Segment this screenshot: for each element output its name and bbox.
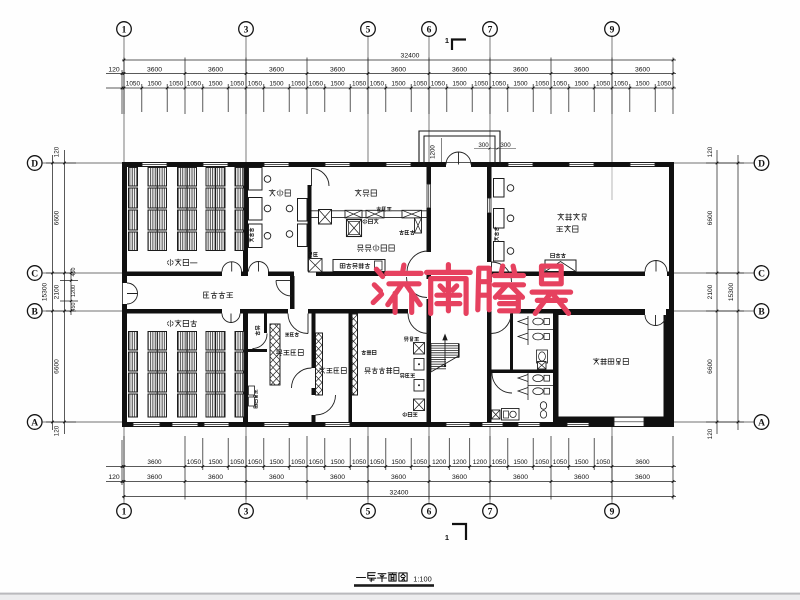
- svg-text:1050: 1050: [126, 81, 141, 88]
- svg-text:1050: 1050: [230, 81, 245, 88]
- svg-text:2100: 2100: [707, 284, 714, 299]
- svg-text:3: 3: [244, 508, 249, 518]
- svg-text:A: A: [31, 418, 38, 428]
- svg-text:D: D: [31, 159, 38, 169]
- svg-text:1200: 1200: [432, 459, 447, 466]
- svg-text:1050: 1050: [169, 81, 184, 88]
- svg-text:1050: 1050: [187, 81, 202, 88]
- svg-text:3600: 3600: [574, 67, 589, 74]
- svg-text:1: 1: [122, 508, 127, 518]
- svg-text:1500: 1500: [208, 459, 223, 466]
- svg-text:1050: 1050: [614, 81, 629, 88]
- svg-text:1050: 1050: [535, 81, 550, 88]
- svg-text:9: 9: [610, 26, 615, 36]
- svg-text:3600: 3600: [208, 474, 223, 481]
- svg-text:7: 7: [488, 26, 493, 36]
- svg-text:3600: 3600: [452, 474, 467, 481]
- svg-text:1050: 1050: [553, 459, 568, 466]
- svg-text:3600: 3600: [635, 67, 650, 74]
- svg-text:450: 450: [71, 268, 77, 277]
- svg-text:C: C: [31, 269, 38, 279]
- svg-text:B: B: [758, 307, 765, 317]
- svg-text:1050: 1050: [596, 81, 611, 88]
- svg-text:1050: 1050: [248, 459, 263, 466]
- svg-text:3600: 3600: [635, 459, 650, 466]
- svg-text:3600: 3600: [147, 67, 162, 74]
- svg-text:3600: 3600: [208, 67, 223, 74]
- svg-text:3600: 3600: [391, 474, 406, 481]
- svg-text:3600: 3600: [330, 474, 345, 481]
- svg-text:1050: 1050: [187, 459, 202, 466]
- svg-text:7: 7: [488, 508, 493, 518]
- svg-text:1050: 1050: [431, 81, 446, 88]
- svg-text:15300: 15300: [42, 283, 49, 302]
- svg-text:1050: 1050: [309, 459, 324, 466]
- svg-text:B: B: [32, 307, 39, 317]
- svg-text:1050: 1050: [492, 459, 507, 466]
- svg-text:D: D: [758, 159, 765, 169]
- svg-text:3600: 3600: [513, 474, 528, 481]
- svg-text:6: 6: [427, 508, 432, 518]
- svg-text:1500: 1500: [391, 459, 406, 466]
- svg-text:1500: 1500: [574, 459, 589, 466]
- svg-text:9: 9: [610, 508, 615, 518]
- svg-text:A: A: [758, 418, 765, 428]
- svg-text:3600: 3600: [452, 67, 467, 74]
- svg-text:1: 1: [445, 533, 449, 542]
- svg-text:3600: 3600: [574, 474, 589, 481]
- svg-text:6600: 6600: [707, 210, 714, 225]
- svg-text:1050: 1050: [291, 81, 306, 88]
- svg-text:1: 1: [122, 26, 127, 36]
- svg-text:1050: 1050: [413, 459, 428, 466]
- svg-text:300: 300: [478, 142, 489, 149]
- svg-text:1500: 1500: [147, 81, 162, 88]
- svg-text:1500: 1500: [513, 459, 528, 466]
- svg-text:120: 120: [707, 428, 714, 439]
- svg-text:C: C: [758, 269, 765, 279]
- svg-text:450: 450: [71, 303, 77, 312]
- svg-text:1050: 1050: [535, 459, 550, 466]
- svg-text:1: 1: [445, 36, 449, 45]
- svg-text:32400: 32400: [401, 53, 420, 60]
- svg-text:3600: 3600: [635, 474, 650, 481]
- svg-text:1050: 1050: [553, 81, 568, 88]
- svg-text:15300: 15300: [728, 283, 735, 302]
- svg-text:1500: 1500: [574, 81, 589, 88]
- svg-text:1500: 1500: [269, 459, 284, 466]
- svg-text:1050: 1050: [370, 459, 385, 466]
- svg-text:2100: 2100: [54, 284, 61, 299]
- svg-text:1050: 1050: [352, 459, 367, 466]
- svg-text:1500: 1500: [208, 81, 223, 88]
- svg-text:120: 120: [54, 146, 61, 157]
- svg-text:1050: 1050: [657, 81, 672, 88]
- svg-text:3600: 3600: [513, 67, 528, 74]
- svg-text:1500: 1500: [452, 81, 467, 88]
- svg-text:1050: 1050: [474, 81, 489, 88]
- svg-text:3600: 3600: [269, 474, 284, 481]
- svg-text:6600: 6600: [707, 359, 714, 374]
- svg-text:1200: 1200: [452, 459, 467, 466]
- svg-text:120: 120: [707, 146, 714, 157]
- svg-text:1500: 1500: [330, 81, 345, 88]
- svg-text:1050: 1050: [248, 81, 263, 88]
- svg-text:1200: 1200: [430, 145, 437, 159]
- svg-text:3: 3: [244, 26, 249, 36]
- svg-text:5: 5: [366, 508, 371, 518]
- svg-text:1500: 1500: [391, 81, 406, 88]
- svg-text:6600: 6600: [54, 210, 61, 225]
- svg-text:1500: 1500: [513, 81, 528, 88]
- svg-text:1500: 1500: [269, 81, 284, 88]
- svg-text:3600: 3600: [147, 459, 162, 466]
- svg-text:6: 6: [427, 26, 432, 36]
- svg-text:1050: 1050: [492, 81, 507, 88]
- svg-text:1200: 1200: [71, 285, 77, 297]
- svg-text:1050: 1050: [413, 81, 428, 88]
- svg-text:1500: 1500: [635, 81, 650, 88]
- svg-text:3600: 3600: [269, 67, 284, 74]
- svg-text:6600: 6600: [54, 359, 61, 374]
- svg-text:1050: 1050: [230, 459, 245, 466]
- svg-text:120: 120: [54, 425, 61, 436]
- svg-text:1:100: 1:100: [413, 575, 432, 584]
- svg-text:120: 120: [108, 67, 120, 74]
- svg-text:300: 300: [500, 142, 511, 149]
- svg-text:1050: 1050: [370, 81, 385, 88]
- svg-text:1050: 1050: [352, 81, 367, 88]
- svg-text:120: 120: [108, 474, 120, 481]
- svg-text:5: 5: [366, 26, 371, 36]
- svg-text:32400: 32400: [390, 490, 409, 497]
- svg-text:1500: 1500: [330, 459, 345, 466]
- svg-text:1050: 1050: [596, 459, 611, 466]
- svg-text:3600: 3600: [391, 67, 406, 74]
- svg-text:1050: 1050: [291, 459, 306, 466]
- svg-text:3600: 3600: [330, 67, 345, 74]
- svg-text:1050: 1050: [309, 81, 324, 88]
- svg-text:3600: 3600: [147, 474, 162, 481]
- svg-text:1200: 1200: [473, 459, 488, 466]
